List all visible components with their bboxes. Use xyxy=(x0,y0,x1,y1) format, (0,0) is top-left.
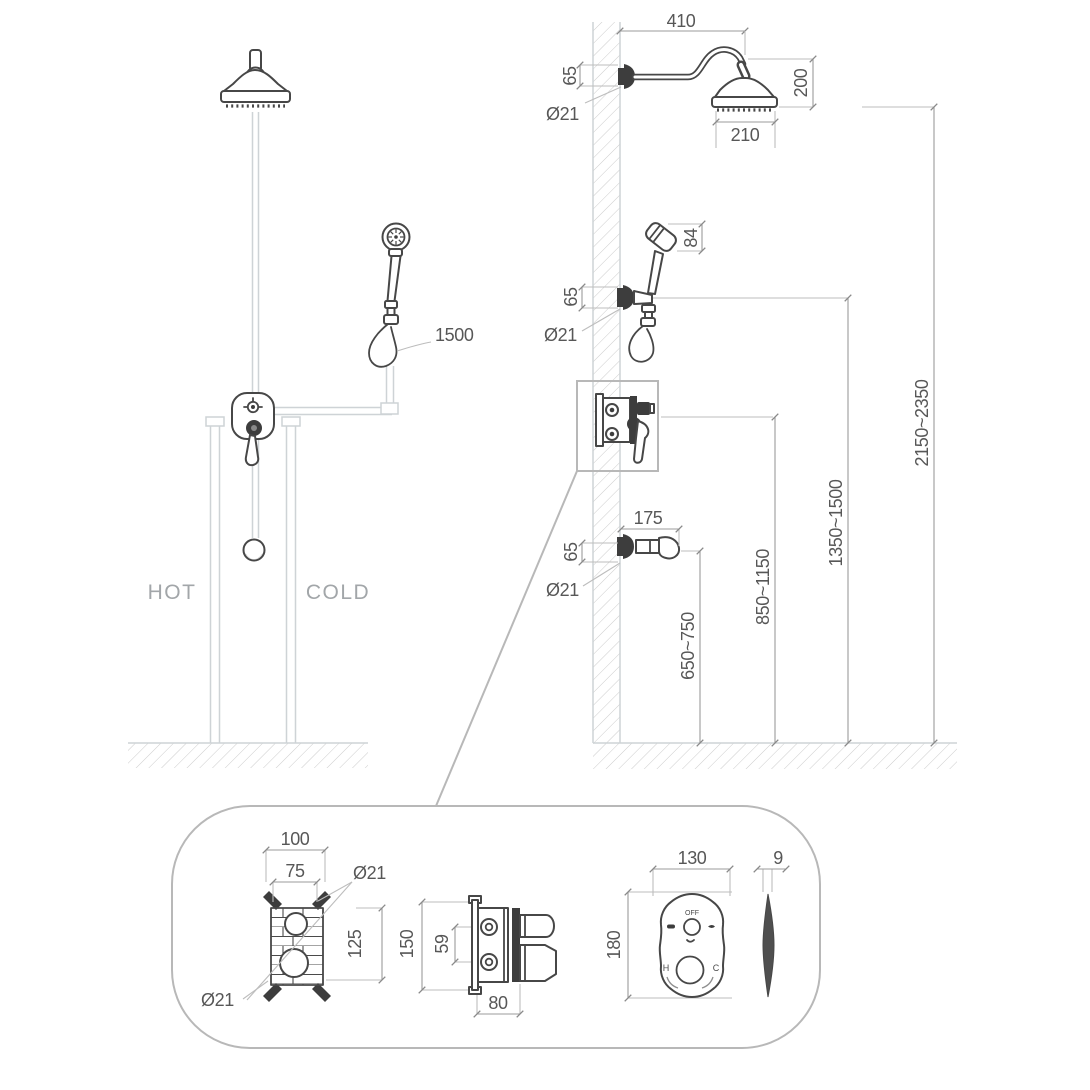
front-view-elevation: 1500 HOT COLD xyxy=(128,50,474,768)
hand-shower-front xyxy=(369,224,410,367)
dimension-height-valve: 850~1150 xyxy=(753,417,775,743)
dim-arm-height: 65 xyxy=(560,66,580,86)
shower-head-front xyxy=(221,50,290,106)
detail-view: 100 75 Ø21 Ø21 125 150 xyxy=(172,806,820,1048)
dim-port-spacing: 59 xyxy=(432,934,452,954)
side-view-elevation: 410 65 Ø21 200 210 xyxy=(436,11,957,806)
dimension-height-handshower: 1350~1500 xyxy=(826,298,848,743)
dimension-height-spout: 650~750 xyxy=(678,551,700,743)
shower-head-side xyxy=(712,78,777,110)
shower-system-dimension-drawing: 410 65 Ø21 200 210 xyxy=(0,0,1090,1090)
dim-height-valve: 850~1150 xyxy=(753,549,773,625)
label-port-diameter-top: Ø21 xyxy=(353,863,386,883)
label-dial-cold: C xyxy=(713,963,720,973)
trim-plate-front: 130 180 OFF H C xyxy=(604,848,732,998)
shower-mode-icon xyxy=(667,925,675,929)
detail-leader-line xyxy=(436,471,577,806)
dim-height-showerhead: 2150~2350 xyxy=(912,379,932,466)
trim-plate-profile: 9 xyxy=(757,848,786,997)
front-floor-section xyxy=(128,743,368,768)
dim-head-diameter: 210 xyxy=(731,125,760,145)
floor-section xyxy=(593,743,957,769)
dim-body-width-inner: 75 xyxy=(285,861,305,881)
label-arm-diameter-text: Ø21 xyxy=(546,104,579,124)
valve-trim-front xyxy=(232,393,274,465)
dim-body-height-outer: 150 xyxy=(397,929,417,958)
label-handshower-diameter-text: Ø21 xyxy=(544,325,577,345)
dim-hose-length: 1500 xyxy=(435,325,474,345)
dim-body-height-inner: 125 xyxy=(345,929,365,958)
dim-plate-height: 180 xyxy=(604,930,624,959)
dimension-height-showerhead: 2150~2350 xyxy=(862,107,934,743)
technical-drawing-page: 410 65 Ø21 200 210 xyxy=(0,0,1090,1090)
dim-handshower-length: 84 xyxy=(681,228,701,248)
hand-shower-side xyxy=(617,221,678,362)
dim-body-width-outer: 100 xyxy=(281,829,310,849)
dim-spout-length: 175 xyxy=(634,508,663,528)
dimension-hose-length: 1500 xyxy=(397,325,474,351)
dim-body-depth: 80 xyxy=(488,993,508,1013)
label-spout-diameter-text: Ø21 xyxy=(546,580,579,600)
label-dial-hot: H xyxy=(663,963,670,973)
wall-section xyxy=(593,22,620,743)
dim-handshower-height: 65 xyxy=(561,287,581,307)
label-dial-off: OFF xyxy=(685,910,699,917)
dim-head-drop: 200 xyxy=(791,68,811,97)
label-cold: COLD xyxy=(306,581,370,604)
dim-plate-width: 130 xyxy=(678,848,707,868)
dim-height-spout: 650~750 xyxy=(678,612,698,680)
bath-spout-side xyxy=(617,534,679,559)
label-port-diameter-bottom: Ø21 xyxy=(201,990,234,1010)
spout-front xyxy=(244,540,265,561)
rough-in-side-view: 150 59 80 xyxy=(397,896,556,1014)
dimension-head-diameter: 210 xyxy=(716,111,775,148)
label-hot: HOT xyxy=(148,581,197,604)
rough-in-rear-view: 100 75 Ø21 Ø21 125 xyxy=(201,829,386,1010)
dim-arm-reach: 410 xyxy=(667,11,696,31)
dim-plate-thickness: 9 xyxy=(773,848,783,868)
dim-spout-height: 65 xyxy=(561,542,581,562)
dim-height-handshower: 1350~1500 xyxy=(826,479,846,566)
